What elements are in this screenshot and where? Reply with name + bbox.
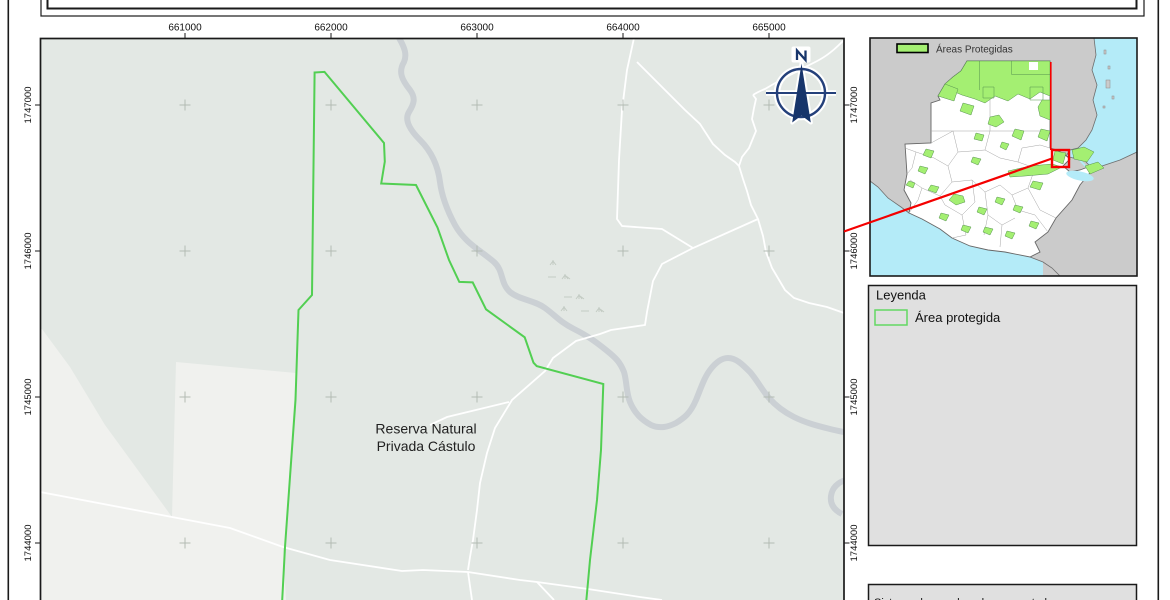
svg-text:1746000: 1746000	[23, 233, 34, 270]
svg-text:662000: 662000	[314, 23, 348, 34]
svg-text:Áreas Protegidas: Áreas Protegidas	[936, 43, 1013, 56]
svg-text:1744000: 1744000	[849, 525, 860, 562]
svg-text:Reserva Natural: Reserva Natural	[375, 421, 476, 437]
svg-text:661000: 661000	[168, 23, 202, 34]
svg-text:663000: 663000	[460, 23, 494, 34]
svg-text:1747000: 1747000	[23, 87, 34, 124]
svg-text:1745000: 1745000	[849, 379, 860, 416]
svg-text:Área protegida: Área protegida	[915, 310, 1001, 325]
svg-text:1744000: 1744000	[23, 525, 34, 562]
svg-text:Leyenda: Leyenda	[876, 288, 927, 303]
svg-text:1745000: 1745000	[23, 379, 34, 416]
svg-text:664000: 664000	[606, 23, 640, 34]
svg-text:665000: 665000	[752, 23, 786, 34]
svg-text:Privada Cástulo: Privada Cástulo	[377, 438, 476, 454]
svg-text:1747000: 1747000	[849, 87, 860, 124]
svg-text:1746000: 1746000	[849, 233, 860, 270]
